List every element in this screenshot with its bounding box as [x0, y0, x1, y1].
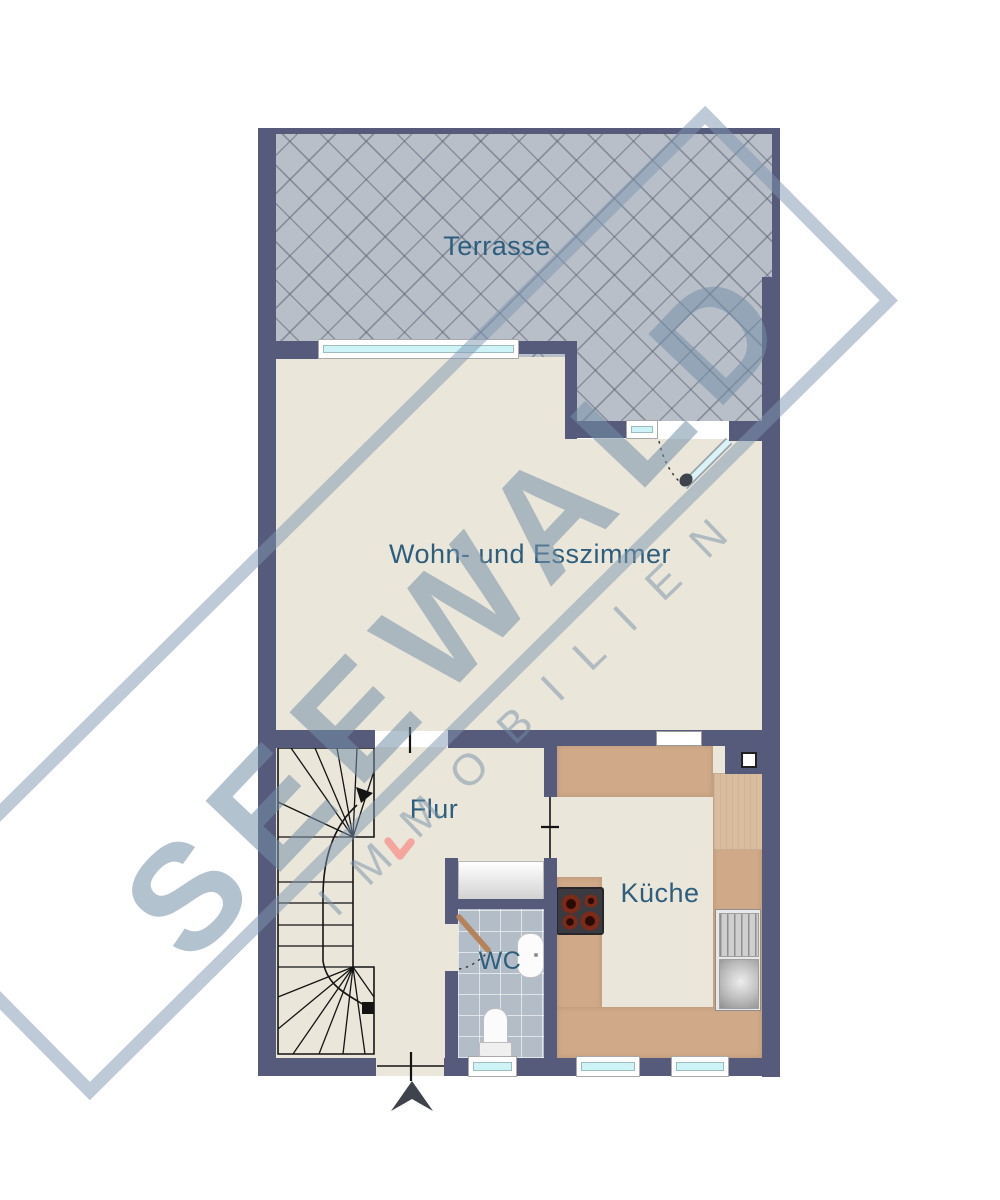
door-swing-arc	[659, 441, 682, 484]
room-label-hall: Flur	[384, 794, 484, 825]
pink-marker-icon	[388, 841, 411, 856]
entrance-arrow-icon	[391, 1081, 433, 1111]
wc-door	[459, 917, 488, 950]
room-label-kitchen: Küche	[610, 878, 710, 909]
room-label-wc: WC	[470, 947, 530, 976]
plan-symbols	[0, 0, 1000, 1200]
floorplan-canvas: Terrasse Wohn- und Esszimmer Flur WC Küc…	[0, 0, 1000, 1200]
room-label-living: Wohn- und Esszimmer	[330, 539, 730, 570]
room-label-terrace: Terrasse	[397, 231, 597, 262]
